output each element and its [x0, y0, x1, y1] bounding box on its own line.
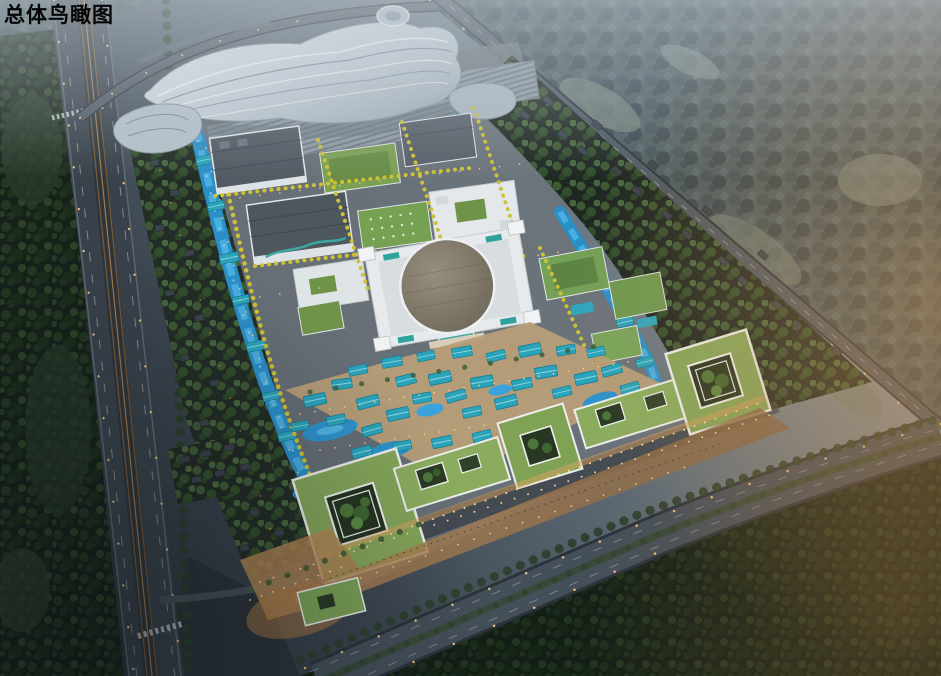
page-title: 总体鸟瞰图	[4, 2, 114, 28]
corner-vignette	[0, 0, 941, 676]
aerial-rendering: 总体鸟瞰图	[0, 0, 941, 676]
masterplan-scene	[0, 0, 941, 676]
